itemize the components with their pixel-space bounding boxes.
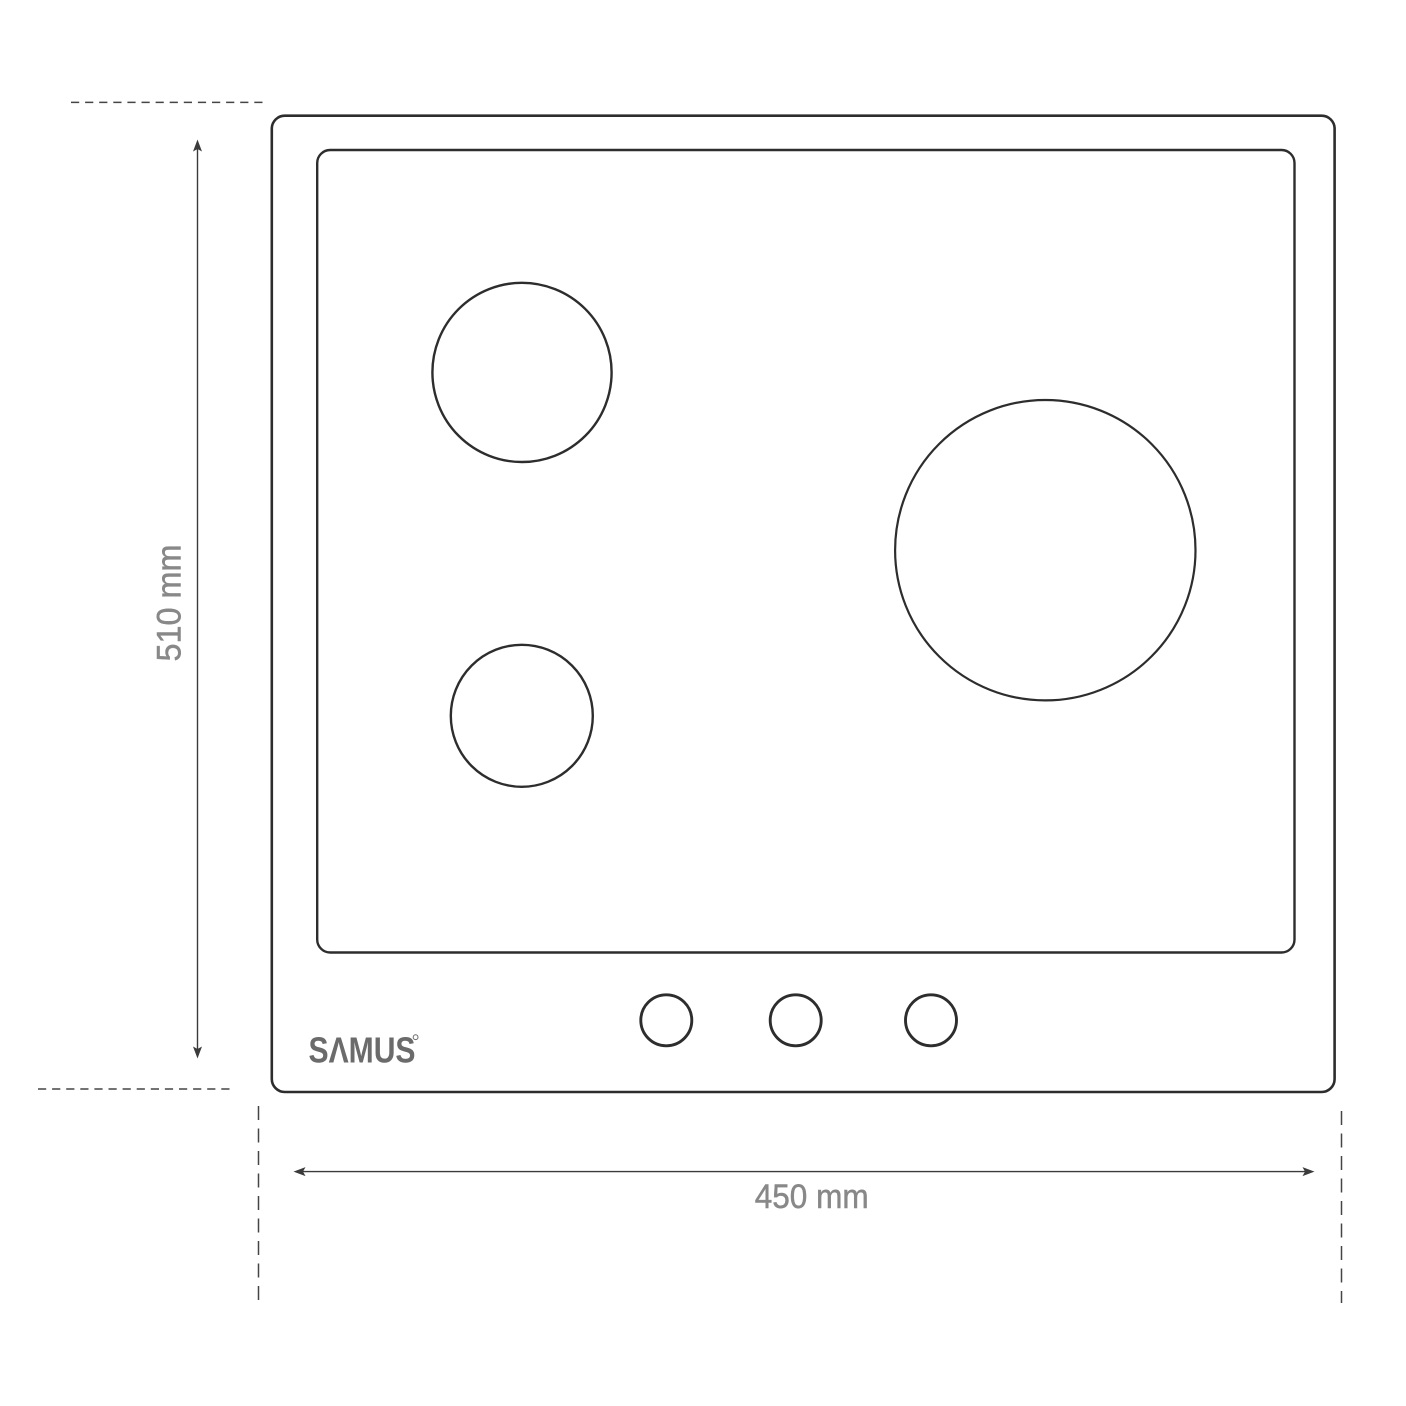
svg-text:510 mm: 510 mm	[150, 545, 188, 662]
svg-text:SΛMUS: SΛMUS	[309, 1030, 416, 1071]
svg-text:450 mm: 450 mm	[755, 1178, 869, 1216]
